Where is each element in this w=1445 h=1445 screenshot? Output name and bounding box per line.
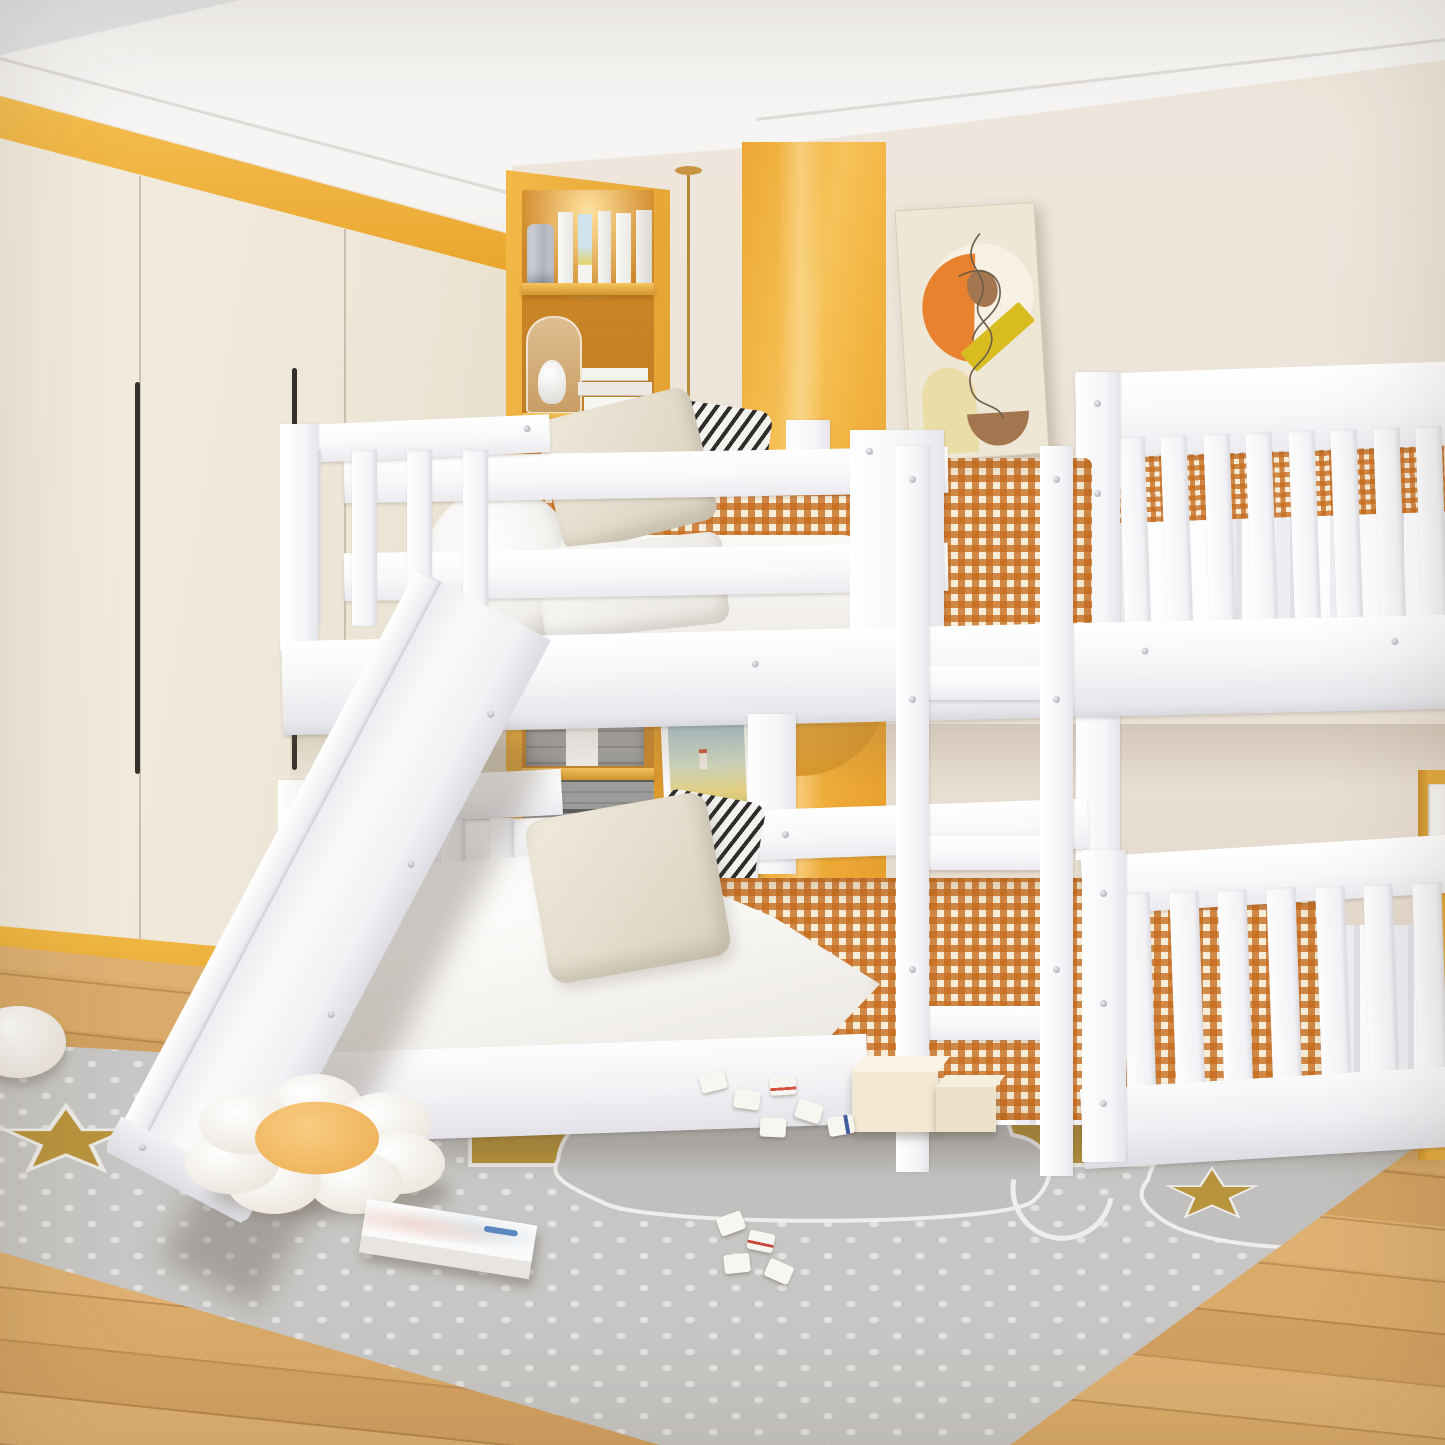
glass-lantern: [527, 224, 554, 284]
bottom-beige-pillow: [523, 790, 733, 985]
flower-cushion: [185, 1074, 445, 1206]
white-books: [558, 210, 652, 286]
poster-art: [894, 202, 1049, 462]
abstract-poster: [894, 202, 1049, 462]
wooden-block: [852, 1068, 938, 1132]
wardrobe-handle: [135, 382, 140, 774]
niche-shelf: [522, 283, 654, 295]
wooden-block: [936, 1084, 996, 1132]
flower-center: [255, 1102, 379, 1175]
ladder-stringer: [1040, 446, 1073, 1176]
cloche-figurine: [538, 360, 566, 404]
top-left-corner-post: [280, 424, 318, 650]
footboard-left-post: [1082, 850, 1126, 1162]
bedroom-scene: [0, 0, 1445, 1445]
pendant-canopy: [675, 166, 702, 175]
